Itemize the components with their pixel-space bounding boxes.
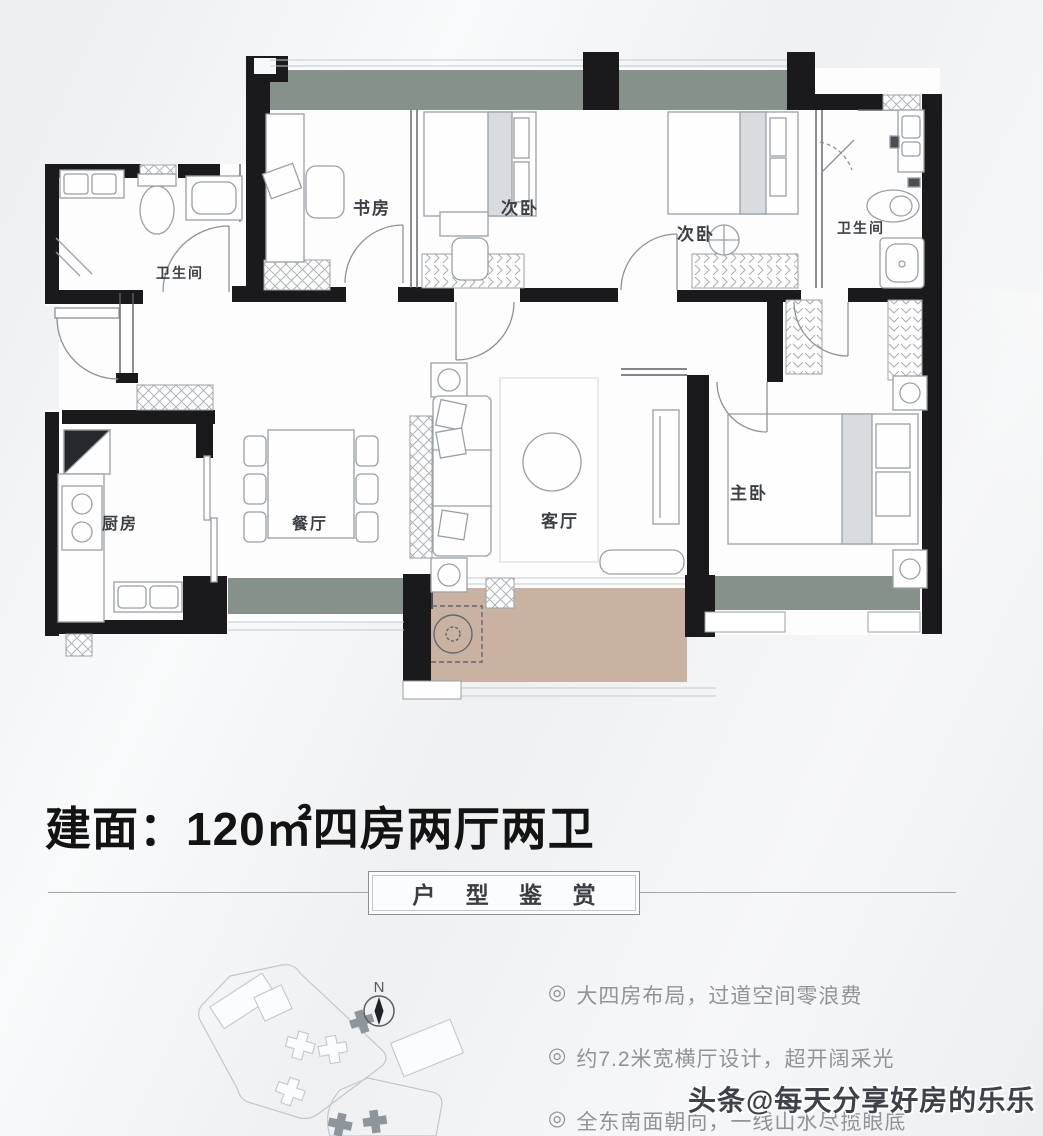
room-label-master: 主卧 — [730, 483, 768, 503]
feature-marker: ◎ — [548, 1043, 567, 1073]
room-label-bathroom-right: 卫生间 — [837, 220, 885, 236]
room-label-bedroom-2: 次卧 — [501, 198, 539, 218]
room-label-living: 客厅 — [540, 511, 579, 531]
page-title: 建面：120㎡四房两厅两卫 — [45, 793, 595, 859]
room-label-kitchen: 厨房 — [102, 514, 138, 533]
balcony — [417, 588, 687, 682]
section-banner: 户 型 鉴 赏 — [368, 871, 640, 915]
room-label-study: 书房 — [353, 198, 391, 218]
room-label-bathroom-left: 卫生间 — [156, 265, 204, 281]
site-buildings — [210, 973, 463, 1109]
section-banner-text: 户 型 鉴 赏 — [400, 876, 607, 910]
compass-label: N — [374, 979, 385, 996]
feature-text: 约7.2米宽横厅设计，超开阔采光 — [576, 1043, 894, 1073]
feature-marker: ◎ — [548, 1106, 567, 1136]
room-label-dining: 餐厅 — [291, 514, 328, 533]
room-label-bedroom-3: 次卧 — [677, 224, 715, 244]
page: 书房 次卧 次卧 卫生间 卫生间 厨房 餐厅 客厅 主卧 建面：120㎡四房两厅… — [0, 0, 1043, 1136]
feature-text: 大四房布局，过道空间零浪费 — [576, 980, 862, 1010]
closet-corridor-left — [786, 300, 822, 374]
feature-marker: ◎ — [548, 980, 567, 1010]
watermark: 头条@每天分享好房的乐乐 — [688, 1079, 1035, 1119]
wardrobe-bedroom-3 — [692, 254, 798, 288]
feature-item: ◎ 大四房布局，过道空间零浪费 — [548, 980, 906, 1010]
floor-plan: 书房 次卧 次卧 卫生间 卫生间 厨房 餐厅 客厅 主卧 — [0, 0, 1043, 760]
site-plan: N — [160, 948, 500, 1136]
feature-item: ◎ 约7.2米宽横厅设计，超开阔采光 — [548, 1043, 906, 1073]
closet-corridor-right — [888, 300, 922, 380]
